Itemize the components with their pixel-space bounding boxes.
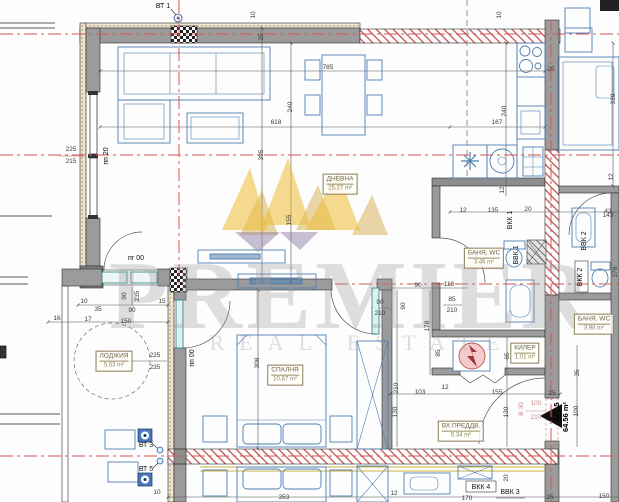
marker-label: пг 00 [128, 255, 144, 262]
dimension-label: 10 [80, 298, 88, 305]
dimension-label: 130 [392, 406, 399, 417]
marker-label: пп 20 [103, 147, 110, 164]
room-area: 3.98 m² [578, 325, 610, 333]
dimension-label: 10 [496, 11, 503, 19]
dimension-label: 130 [503, 406, 510, 417]
dimension-label: 25 [547, 66, 555, 73]
dimension-label: 135 [488, 207, 499, 214]
dimension-label: 143 [603, 212, 614, 219]
watermark-subtitle: REAL ESTATE [210, 330, 515, 355]
marker-label: ВВК 1 [513, 245, 520, 264]
dimension-label: 118 [444, 281, 455, 288]
room-label: БАНЯ, WC3.98 m² [574, 314, 614, 335]
dimension-label: 25 [258, 33, 265, 41]
dimension-label: 85 [448, 296, 456, 303]
room-area: 5.34 m² [442, 432, 480, 440]
outside-structures [0, 23, 60, 424]
dimension-label: 12 [608, 173, 615, 181]
floor-plan-svg: PREMIER REAL ESTATE ВТ 11025785618167102… [0, 0, 619, 502]
room-label: БАНЯ, WC3.46 m² [464, 248, 504, 269]
dimension-label: 25 [546, 494, 554, 501]
dimension-label: 16 [53, 315, 61, 322]
dimension-label: 235 [134, 290, 141, 301]
dimension-label: 103 [415, 389, 426, 396]
room-name: ДНЕВНА [327, 176, 354, 185]
marker-label: ВВК 2 [581, 231, 588, 250]
room-label: ЛОДЖИЯ5.63 m² [96, 351, 133, 372]
room-name: ЛОДЖИЯ [100, 353, 129, 362]
room-label: ВХ.ПРЕДДВ.5.34 m² [438, 421, 484, 442]
folding-door [460, 375, 505, 383]
room-name: БАНЯ, WC [578, 316, 610, 325]
room-area: 25.27 m² [327, 185, 354, 193]
dimension-label: 167 [492, 119, 503, 126]
apartment-number: АП. 5 [552, 402, 561, 421]
dimension-label: 12 [459, 207, 467, 214]
dimension-label: 17 [84, 316, 92, 323]
marker-label: ВТ 1 [156, 3, 170, 10]
dimension-label: 155 [286, 214, 293, 225]
dimension-label: 240 [287, 101, 294, 112]
dimension-label: 12 [390, 490, 398, 497]
dimension-label: 353 [279, 494, 290, 501]
dimension-label: В 30 [518, 402, 525, 416]
top-corner-cabinet [600, 0, 619, 11]
dimension-label: 25 [548, 390, 556, 397]
dimension-label: 225 [66, 146, 77, 153]
dimension-label: 150 [599, 493, 610, 500]
marker-label: пп 00 [189, 349, 196, 366]
dimension-label: 210 [447, 307, 458, 314]
dimension-label: 395 [258, 149, 265, 160]
dimension-label: 90 [414, 282, 422, 289]
room-area: 5.63 m² [100, 362, 129, 370]
dimension-label: 225 [150, 352, 161, 359]
dimension-label: 235 [150, 364, 161, 371]
dimension-label: 20 [524, 206, 532, 213]
dimension-label: 90 [128, 307, 136, 314]
room-name: ВХ.ПРЕДДВ. [442, 423, 480, 432]
dimension-label: 90 [400, 302, 407, 310]
dimension-label: 100 [531, 400, 542, 407]
room-label: ДНЕВНА25.27 m² [323, 174, 358, 195]
room-label: КИЛЕР1.01 m² [510, 343, 539, 364]
dimension-label: 15 [158, 298, 166, 305]
dimension-label: 12 [499, 186, 506, 194]
dimension-label: 155 [492, 389, 503, 396]
dimension-label: 210 [393, 382, 400, 393]
marker-label: ВТ 5 [139, 466, 153, 473]
premier-crown-logo [222, 158, 388, 252]
marker-label: ВКК 4 [472, 484, 491, 491]
dimension-label: 35 [574, 369, 581, 377]
dimension-label: 100 [573, 405, 580, 416]
vt1-marker-icon [171, 9, 182, 22]
dimension-label: 10 [153, 489, 161, 496]
dimension-label: 308 [254, 357, 261, 368]
dimension-label: 785 [323, 64, 334, 71]
dimension-label: 310 [610, 93, 617, 104]
sofa [118, 47, 270, 143]
floor-plan-canvas: PREMIER REAL ESTATE ВТ 11025785618167102… [0, 0, 619, 502]
dining-table [305, 55, 382, 135]
vt3-marker-icon [138, 429, 152, 442]
dimension-label: 210 [531, 414, 542, 421]
dimension-label: 90 [121, 292, 128, 300]
marker-label: ВКК 2 [577, 268, 584, 287]
coffee-table [187, 113, 243, 143]
room-area: 1.01 m² [514, 354, 535, 362]
dimension-label: 210 [375, 310, 386, 317]
dimension-label: 20 [503, 474, 510, 482]
room-name: БАНЯ, WC [468, 250, 500, 259]
apartment-area: 64.56 m² [561, 401, 570, 432]
dimension-label: 240 [501, 105, 508, 116]
dimension-label: 10 [250, 11, 257, 19]
room-area: 3.46 m² [468, 259, 500, 267]
marker-label: ВКК 1 [507, 211, 514, 230]
dimension-label: 215 [66, 158, 77, 165]
room-name: КИЛЕР [514, 345, 535, 354]
dimension-label: 618 [271, 119, 282, 126]
dimension-label: 278 [612, 266, 619, 277]
marker-label: ВВК 3 [500, 489, 519, 496]
room-label: СПАЛНЯ10.87 m² [267, 365, 303, 386]
dimension-label: 178 [424, 320, 431, 331]
dimension-label: 85 [435, 349, 442, 357]
dimension-label: 170 [462, 495, 473, 502]
dimension-label: 90 [376, 299, 384, 306]
room-name: СПАЛНЯ [271, 367, 299, 376]
vt5-marker-icon [138, 473, 152, 486]
marker-label: ВТ 3 [139, 442, 153, 449]
room-area: 10.87 m² [271, 376, 299, 384]
dimension-label: 150 [121, 318, 132, 325]
dimension-label: 12 [441, 384, 449, 391]
dimension-label: 35 [94, 306, 102, 313]
